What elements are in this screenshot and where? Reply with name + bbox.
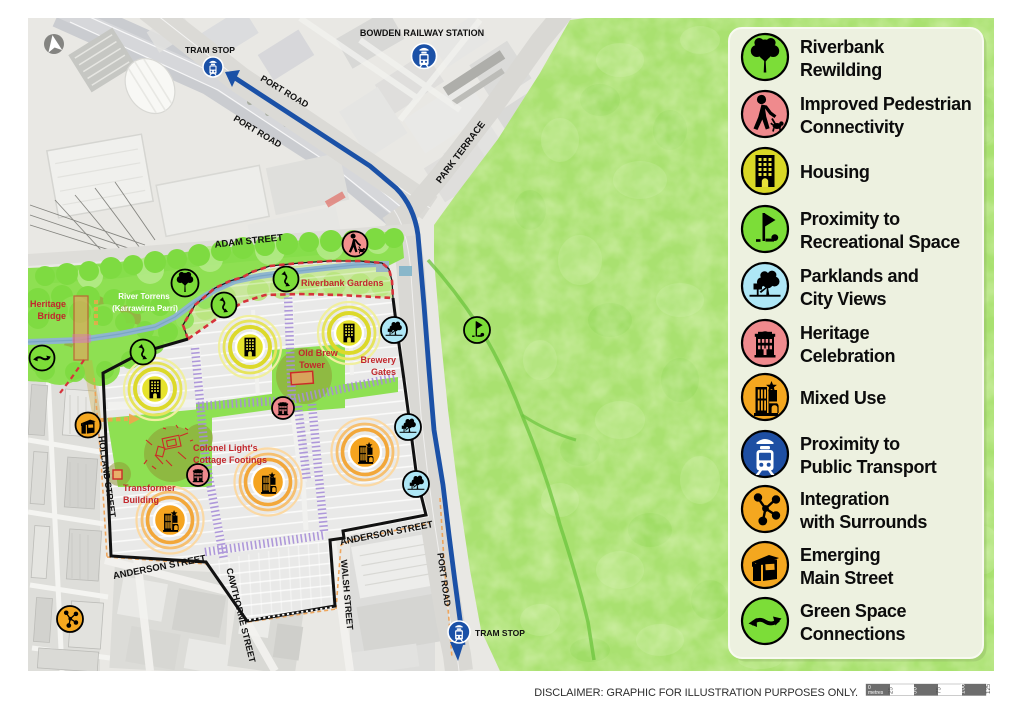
svg-text:50: 50: [912, 687, 919, 694]
svg-text:Connectivity: Connectivity: [800, 117, 904, 137]
svg-text:Bridge: Bridge: [37, 311, 66, 321]
svg-text:TRAM STOP: TRAM STOP: [185, 45, 235, 55]
svg-text:100: 100: [960, 683, 967, 694]
svg-text:Building: Building: [123, 495, 159, 505]
svg-text:Colonel Light's: Colonel Light's: [193, 443, 258, 453]
svg-text:Green Space: Green Space: [800, 601, 907, 621]
svg-text:Recreational Space: Recreational Space: [800, 232, 960, 252]
svg-text:Main Street: Main Street: [800, 568, 894, 588]
svg-text:75: 75: [936, 687, 943, 694]
svg-text:Cottage Footings: Cottage Footings: [193, 455, 267, 465]
svg-text:Connections: Connections: [800, 624, 905, 644]
svg-text:Housing: Housing: [800, 162, 870, 182]
svg-text:TRAM STOP: TRAM STOP: [475, 628, 525, 638]
svg-text:Riverbank Gardens: Riverbank Gardens: [301, 278, 384, 288]
svg-text:Proximity to: Proximity to: [800, 209, 900, 229]
svg-text:Emerging: Emerging: [800, 545, 880, 565]
svg-text:Riverbank: Riverbank: [800, 37, 885, 57]
svg-text:Celebration: Celebration: [800, 346, 895, 366]
svg-text:Improved Pedestrian: Improved Pedestrian: [800, 94, 971, 114]
svg-text:Public Transport: Public Transport: [800, 457, 937, 477]
svg-text:25: 25: [888, 687, 895, 694]
svg-text:(Karrawirra Parri): (Karrawirra Parri): [112, 304, 178, 313]
svg-text:Proximity to: Proximity to: [800, 434, 900, 454]
svg-text:Gates: Gates: [371, 367, 396, 377]
svg-text:City Views: City Views: [800, 289, 887, 309]
svg-text:Heritage: Heritage: [30, 299, 66, 309]
svg-text:125: 125: [985, 683, 992, 694]
svg-text:Heritage: Heritage: [800, 323, 870, 343]
svg-text:Integration: Integration: [800, 489, 889, 509]
svg-text:Old Brew: Old Brew: [298, 348, 339, 358]
svg-text:BOWDEN RAILWAY STATION: BOWDEN RAILWAY STATION: [360, 28, 484, 38]
svg-text:with Surrounds: with Surrounds: [799, 512, 927, 532]
svg-text:Brewery: Brewery: [360, 355, 396, 365]
svg-text:Parklands and: Parklands and: [800, 266, 919, 286]
svg-text:Transformer: Transformer: [123, 483, 176, 493]
svg-text:Mixed Use: Mixed Use: [800, 388, 886, 408]
svg-text:metres: metres: [868, 690, 884, 696]
svg-text:Rewilding: Rewilding: [800, 60, 882, 80]
svg-text:Tower: Tower: [299, 360, 325, 370]
svg-text:River Torrens: River Torrens: [118, 292, 170, 301]
svg-text:DISCLAIMER: GRAPHIC FOR ILLUST: DISCLAIMER: GRAPHIC FOR ILLUSTRATION PUR…: [534, 687, 858, 699]
